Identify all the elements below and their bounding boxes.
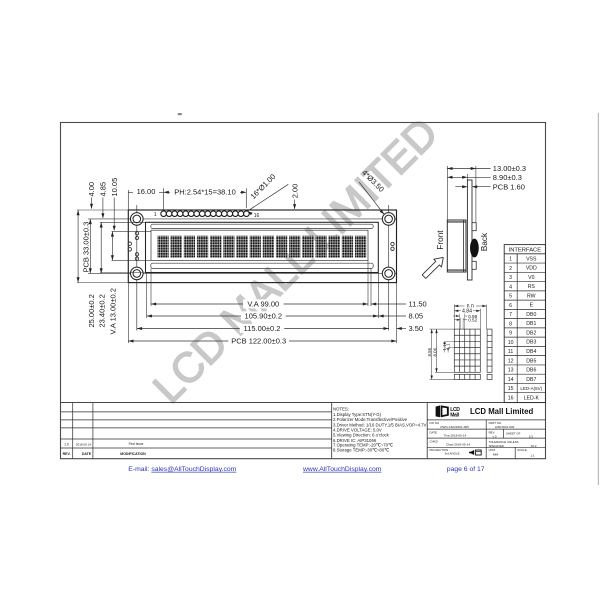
svg-text:E: E bbox=[530, 303, 534, 309]
svg-text:23.40±0.2: 23.40±0.2 bbox=[98, 294, 107, 327]
svg-text:INTERFACE: INTERFACE bbox=[509, 248, 542, 254]
svg-text:16: 16 bbox=[254, 213, 260, 219]
svg-text:DB1: DB1 bbox=[526, 321, 536, 327]
svg-text:1.0: 1.0 bbox=[64, 442, 69, 446]
svg-text:First Issue: First Issue bbox=[129, 442, 144, 446]
svg-text:DB3: DB3 bbox=[526, 340, 536, 346]
svg-text:V.A 99.00: V.A 99.00 bbox=[247, 299, 279, 308]
svg-text:DB5: DB5 bbox=[526, 358, 536, 364]
svg-text:12: 12 bbox=[508, 358, 514, 364]
svg-text:13: 13 bbox=[508, 368, 514, 374]
svg-text:±0.2: ±0.2 bbox=[531, 444, 537, 448]
svg-text:2: 2 bbox=[509, 266, 512, 272]
svg-text:VSS: VSS bbox=[526, 256, 537, 262]
svg-text:MODIFICATION: MODIFICATION bbox=[120, 452, 146, 456]
svg-text:6: 6 bbox=[509, 303, 512, 309]
svg-text:LCD Mall Limited: LCD Mall Limited bbox=[470, 407, 533, 416]
svg-text:3: 3 bbox=[509, 275, 512, 281]
svg-text:8.90±0.3: 8.90±0.3 bbox=[493, 173, 522, 182]
svg-text:1.1: 1.1 bbox=[446, 343, 451, 350]
svg-text:PH:2.54*15=38.10: PH:2.54*15=38.10 bbox=[174, 188, 236, 197]
svg-text:DB0: DB0 bbox=[526, 312, 536, 318]
svg-text:4.85: 4.85 bbox=[99, 182, 108, 197]
svg-text:PCB 1.60: PCB 1.60 bbox=[493, 182, 525, 191]
svg-text:25.00±0.2: 25.00±0.2 bbox=[87, 294, 96, 327]
svg-text:PCB 122.00±0.3: PCB 122.00±0.3 bbox=[231, 336, 286, 345]
svg-text:DWG-16021601-005: DWG-16021601-005 bbox=[440, 425, 469, 429]
svg-text:FW NO: FW NO bbox=[430, 421, 440, 425]
svg-text:11.50: 11.50 bbox=[409, 300, 427, 309]
svg-text:8: 8 bbox=[509, 321, 512, 327]
svg-text:Front: Front bbox=[436, 230, 445, 250]
svg-text:1: 1 bbox=[509, 257, 512, 263]
svg-text:2.Polarizer Mode:Transflective: 2.Polarizer Mode:Transflective/Positive bbox=[333, 417, 408, 422]
svg-text:www.AllTouchDisplay.com: www.AllTouchDisplay.com bbox=[302, 466, 382, 473]
svg-text:VDD: VDD bbox=[526, 266, 537, 272]
svg-text:0.52: 0.52 bbox=[468, 318, 477, 323]
svg-text:10: 10 bbox=[508, 340, 514, 346]
svg-text:3rd ANGLE: 3rd ANGLE bbox=[445, 452, 460, 456]
svg-text:DATE: DATE bbox=[82, 452, 92, 456]
svg-text:Mall: Mall bbox=[450, 412, 459, 418]
svg-text:NOTES:: NOTES: bbox=[333, 406, 349, 411]
svg-text:Tina 2018-05-14: Tina 2018-05-14 bbox=[444, 433, 467, 437]
svg-text:8.56: 8.56 bbox=[427, 347, 432, 356]
svg-text:E-mail: sales@AllTouchDisplay.: E-mail: sales@AllTouchDisplay.com bbox=[128, 466, 236, 473]
svg-text:PCB 33.00±0.3: PCB 33.00±0.3 bbox=[82, 222, 91, 273]
svg-text:DB2: DB2 bbox=[526, 330, 536, 336]
svg-text:SHEET OF: SHEET OF bbox=[506, 431, 521, 435]
svg-text:16: 16 bbox=[508, 395, 514, 401]
svg-text:DATE: DATE bbox=[430, 430, 438, 434]
svg-text:DB4: DB4 bbox=[526, 349, 536, 355]
svg-text:10.05: 10.05 bbox=[110, 178, 119, 197]
svg-text:DB7: DB7 bbox=[526, 377, 536, 383]
svg-text:Chad 2018-05-14: Chad 2018-05-14 bbox=[446, 442, 470, 446]
svg-text:5.Viewing Direction: 6 o’clock: 5.Viewing Direction: 6 o’clock bbox=[333, 433, 390, 438]
svg-text:105.90±0.2: 105.90±0.2 bbox=[245, 311, 282, 320]
svg-text:V.A 13.00±0.2: V.A 13.00±0.2 bbox=[109, 288, 118, 334]
svg-text:RS: RS bbox=[528, 284, 536, 290]
svg-text:SCALE: SCALE bbox=[517, 448, 527, 452]
svg-text:15: 15 bbox=[508, 386, 514, 392]
svg-text:DB6: DB6 bbox=[526, 368, 536, 374]
svg-text:1/1: 1/1 bbox=[529, 435, 534, 439]
svg-text:9: 9 bbox=[509, 331, 512, 337]
svg-text:1:1: 1:1 bbox=[530, 453, 535, 457]
svg-text:CHKD: CHKD bbox=[430, 439, 438, 443]
svg-text:8.06: 8.06 bbox=[432, 347, 437, 356]
svg-text:11: 11 bbox=[508, 349, 513, 355]
svg-text:2018.05.14: 2018.05.14 bbox=[76, 442, 92, 446]
svg-text:5: 5 bbox=[509, 294, 512, 300]
svg-text:REV.: REV. bbox=[63, 452, 71, 456]
svg-text:2.00: 2.00 bbox=[291, 184, 300, 199]
svg-text:page 6 of 17: page 6 of 17 bbox=[447, 466, 485, 473]
svg-text:14: 14 bbox=[508, 377, 514, 383]
svg-text:LED-A(5V): LED-A(5V) bbox=[520, 386, 542, 391]
svg-text:Back: Back bbox=[480, 232, 489, 251]
svg-text:RW: RW bbox=[527, 293, 536, 299]
svg-text:v.0: v.0 bbox=[493, 434, 497, 438]
svg-text:7: 7 bbox=[509, 312, 512, 318]
svg-text:1: 1 bbox=[154, 212, 157, 218]
svg-text:4.00: 4.00 bbox=[87, 182, 96, 197]
svg-text:8.Storage TEMP:-30℃~80℃: 8.Storage TEMP:-30℃~80℃ bbox=[333, 448, 389, 453]
svg-text:115.00±0.2: 115.00±0.2 bbox=[244, 324, 281, 333]
svg-text:16.00: 16.00 bbox=[137, 187, 156, 196]
svg-text:LED-K: LED-K bbox=[524, 395, 540, 401]
svg-text:3.50: 3.50 bbox=[409, 324, 424, 333]
svg-text:8.05: 8.05 bbox=[409, 312, 424, 321]
svg-text:LMD1601-002: LMD1601-002 bbox=[495, 425, 515, 429]
svg-text:13.00±0.3: 13.00±0.3 bbox=[493, 164, 526, 173]
svg-text:V0: V0 bbox=[528, 275, 534, 281]
svg-text:4: 4 bbox=[509, 284, 512, 290]
svg-text:MM: MM bbox=[493, 452, 499, 456]
svg-text:UNIT: UNIT bbox=[489, 448, 496, 452]
